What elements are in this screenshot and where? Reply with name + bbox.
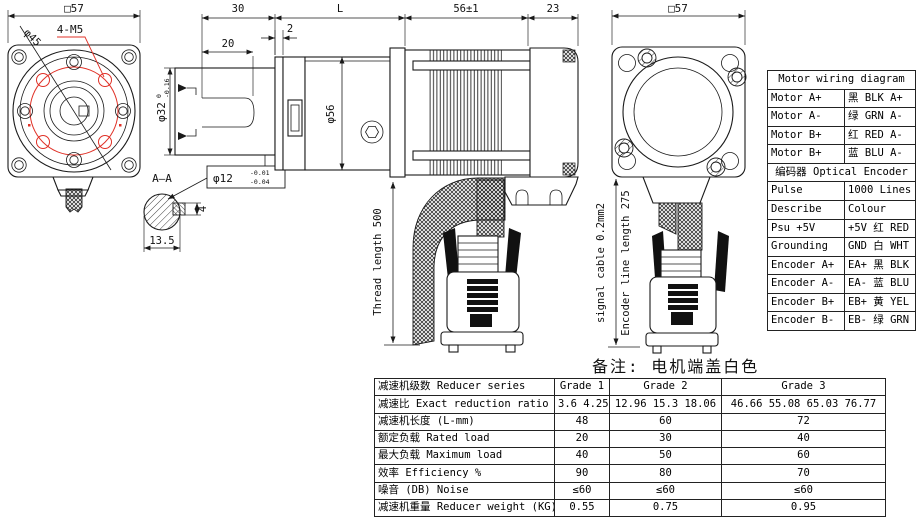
table-cell: Motor A- bbox=[768, 108, 845, 127]
connector-cable bbox=[477, 180, 504, 237]
table-row: Encoder A+EA+ 黑 BLK bbox=[768, 256, 916, 275]
table-row: Motor A+黑 BLK A+ bbox=[768, 89, 916, 108]
table-cell: 减速机长度 (L-mm) bbox=[375, 413, 555, 430]
table-row: Motor A-绿 GRN A- bbox=[768, 108, 916, 127]
key-section bbox=[173, 203, 185, 215]
center-mark-right bbox=[119, 124, 122, 127]
spec-table: 减速机级数 Reducer series Grade 1 Grade 2 Gra… bbox=[374, 378, 886, 517]
key-dia-tol-upper: -0.01 bbox=[250, 169, 270, 177]
table-cell: 效率 Efficiency % bbox=[375, 465, 555, 482]
table-row: 效率 Efficiency % 90 80 70 bbox=[375, 465, 886, 482]
table-row: Motor wiring diagram bbox=[768, 71, 916, 90]
table-cell: Encoder A+ bbox=[768, 256, 845, 275]
db-connector-base bbox=[441, 332, 523, 345]
gearbox-dia-dim: φ56 bbox=[325, 105, 337, 124]
table-row: Encoder A-EA- 蓝 BLU bbox=[768, 275, 916, 294]
shaft-dia-tol-lower: -0.16 bbox=[163, 78, 171, 98]
table-cell: 40 bbox=[555, 448, 610, 465]
table-cell: 90 bbox=[555, 465, 610, 482]
table-cell: Describe bbox=[768, 200, 845, 219]
output-shaft bbox=[175, 68, 275, 155]
table-cell: EA- 蓝 BLU bbox=[845, 275, 916, 294]
spec-header-grade3: Grade 3 bbox=[722, 379, 886, 396]
table-cell: +5V 红 RED bbox=[845, 219, 916, 238]
table-row: DescribeColour bbox=[768, 200, 916, 219]
thumb-screw-right bbox=[505, 228, 521, 279]
motor-flange bbox=[390, 48, 405, 177]
table-row: Psu +5V+5V 红 RED bbox=[768, 219, 916, 238]
table-cell: 减速比 Exact reduction ratio bbox=[375, 396, 555, 413]
table-row: 编码器 Optical Encoder bbox=[768, 163, 916, 182]
front-view: □57 bbox=[8, 2, 140, 212]
table-cell: Encoder A- bbox=[768, 275, 845, 294]
table-cell: 噪音 (DB) Noise bbox=[375, 482, 555, 499]
table-cell: Motor B+ bbox=[768, 145, 845, 164]
spec-header-grade1: Grade 1 bbox=[555, 379, 610, 396]
table-cell: 3.6 4.25 bbox=[555, 396, 610, 413]
table-cell: Motor B+ bbox=[768, 126, 845, 145]
rear-db-connector-base bbox=[646, 333, 718, 346]
thumb-screw-left bbox=[443, 228, 459, 279]
center-mark-left bbox=[28, 124, 31, 127]
keyway-length-dim: 20 bbox=[222, 38, 235, 50]
table-cell: Encoder B+ bbox=[768, 293, 845, 312]
table-row: Encoder B-EB- 绿 GRN bbox=[768, 312, 916, 331]
table-cell: Pulse bbox=[768, 182, 845, 201]
table-row: Motor B+红 RED A- bbox=[768, 126, 916, 145]
table-cell: 0.55 bbox=[555, 499, 610, 516]
rear-neck bbox=[643, 177, 710, 203]
strain-relief bbox=[458, 236, 498, 272]
spec-header-grade2: Grade 2 bbox=[610, 379, 722, 396]
table-cell: 额定负载 Rated load bbox=[375, 430, 555, 447]
table-cell: Grounding bbox=[768, 238, 845, 257]
table-cell: Motor A+ bbox=[768, 89, 845, 108]
encoder-length-label: Encoder line length 275 bbox=[620, 190, 632, 335]
key-dia-base: φ12 bbox=[213, 172, 233, 185]
m5-label: 4-M5 bbox=[57, 23, 84, 36]
table-cell: 70 bbox=[722, 465, 886, 482]
thread-length-label: Thread length 500 bbox=[372, 208, 384, 315]
table-cell: 1000 Lines bbox=[845, 182, 916, 201]
table-cell: EB+ 黄 YEL bbox=[845, 293, 916, 312]
table-cell: 60 bbox=[722, 448, 886, 465]
table-cell: 50 bbox=[610, 448, 722, 465]
table-cell: 46.66 55.08 65.03 76.77 bbox=[722, 396, 886, 413]
section-width-dim: 13.5 bbox=[149, 235, 174, 247]
spec-header-label: 减速机级数 Reducer series bbox=[375, 379, 555, 396]
table-cell: 12.96 15.3 18.06 bbox=[610, 396, 722, 413]
note-text: 备注: 电机端盖白色 bbox=[592, 353, 759, 377]
table-cell: 0.95 bbox=[722, 499, 886, 516]
table-row: Pulse1000 Lines bbox=[768, 182, 916, 201]
rear-width-dim: □57 bbox=[668, 2, 688, 15]
rear-cap-dim: 23 bbox=[547, 3, 560, 15]
engineering-drawing-page: □57 bbox=[0, 0, 918, 518]
table-row: 减速机重量 Reducer weight (KG) 0.55 0.75 0.95 bbox=[375, 499, 886, 516]
section-aa: A—A 13.5 4 bbox=[144, 172, 209, 252]
table-row: 噪音 (DB) Noise ≤60 ≤60 ≤60 bbox=[375, 482, 886, 499]
section-title: A—A bbox=[152, 172, 172, 185]
encoder-section-header: 编码器 Optical Encoder bbox=[768, 163, 916, 182]
table-cell: 最大负载 Maximum load bbox=[375, 448, 555, 465]
table-row: Encoder B+EB+ 黄 YEL bbox=[768, 293, 916, 312]
table-row: 减速比 Exact reduction ratio 3.6 4.25 12.96… bbox=[375, 396, 886, 413]
step-dim: 2 bbox=[287, 23, 293, 35]
table-cell: 30 bbox=[610, 430, 722, 447]
wiring-title: Motor wiring diagram bbox=[768, 71, 916, 90]
key-dia-tol-lower: -0.04 bbox=[250, 178, 270, 186]
table-cell: 0.75 bbox=[610, 499, 722, 516]
front-width-dim: □57 bbox=[64, 2, 84, 15]
gearbox-body bbox=[305, 57, 390, 170]
rear-cable-stub bbox=[659, 203, 676, 234]
front-cable bbox=[66, 189, 82, 212]
signal-cable-label: signal cable 0.2mm2 bbox=[595, 203, 607, 323]
rear-strain-relief bbox=[661, 250, 701, 277]
table-cell: GND 白 WHT bbox=[845, 238, 916, 257]
table-cell: 72 bbox=[722, 413, 886, 430]
motor-length-dim: 56±1 bbox=[453, 3, 478, 15]
table-cell: 40 bbox=[722, 430, 886, 447]
table-cell: Psu +5V bbox=[768, 219, 845, 238]
table-row: 额定负载 Rated load 20 30 40 bbox=[375, 430, 886, 447]
table-cell: Encoder B- bbox=[768, 312, 845, 331]
key-height-dim: 4 bbox=[197, 206, 209, 212]
table-row: Motor B+蓝 BLU A- bbox=[768, 145, 916, 164]
table-cell: 20 bbox=[555, 430, 610, 447]
encoder-cable bbox=[678, 203, 702, 250]
table-cell: 减速机重量 Reducer weight (KG) bbox=[375, 499, 555, 516]
table-cell: 蓝 BLU A- bbox=[845, 145, 916, 164]
wiring-table: Motor wiring diagram Motor A+黑 BLK A+ Mo… bbox=[767, 70, 916, 331]
table-cell: 48 bbox=[555, 413, 610, 430]
table-cell: Colour bbox=[845, 200, 916, 219]
table-cell: ≤60 bbox=[610, 482, 722, 499]
table-cell: 红 RED A- bbox=[845, 126, 916, 145]
table-cell: ≤60 bbox=[722, 482, 886, 499]
shaft-dia-tol-upper: 0 bbox=[155, 94, 163, 98]
shaft-length-dim: 30 bbox=[232, 3, 245, 15]
table-cell: EB- 绿 GRN bbox=[845, 312, 916, 331]
table-row: 减速机级数 Reducer series Grade 1 Grade 2 Gra… bbox=[375, 379, 886, 396]
motor-cable-connector: Thread length 500 bbox=[372, 178, 523, 352]
gearbox-length-dim: L bbox=[337, 3, 343, 15]
table-cell: 80 bbox=[610, 465, 722, 482]
table-row: 最大负载 Maximum load 40 50 60 bbox=[375, 448, 886, 465]
table-cell: 60 bbox=[610, 413, 722, 430]
table-cell: 黑 BLK A+ bbox=[845, 89, 916, 108]
motor-rear-cap bbox=[530, 48, 578, 177]
table-cell: 绿 GRN A- bbox=[845, 108, 916, 127]
table-row: 减速机长度 (L-mm) 48 60 72 bbox=[375, 413, 886, 430]
rear-view: □57 signal cable 0.2mm2 Encoder li bbox=[595, 2, 746, 353]
table-row: GroundingGND 白 WHT bbox=[768, 238, 916, 257]
shaft-dia-base: φ32 bbox=[155, 102, 168, 122]
table-cell: ≤60 bbox=[555, 482, 610, 499]
table-cell: EA+ 黑 BLK bbox=[845, 256, 916, 275]
